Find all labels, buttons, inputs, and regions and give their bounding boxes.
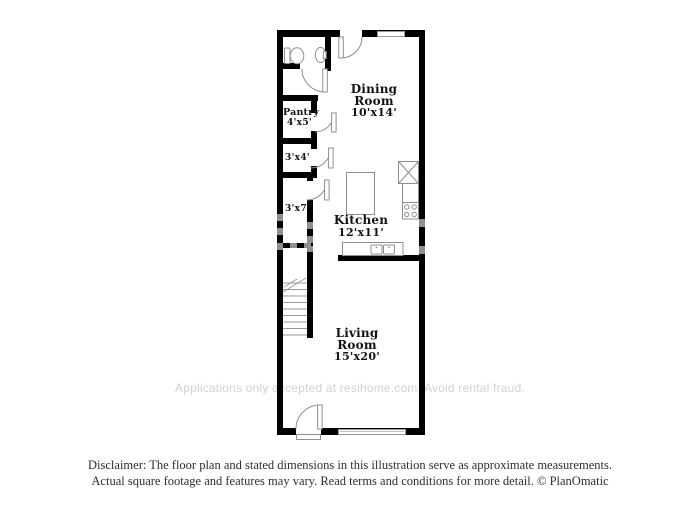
label-pantry: Pantry 4'x5' [283, 108, 316, 128]
kitchen-counter-right [403, 184, 419, 203]
room-dims: 4'x5' [283, 118, 316, 128]
room-dims: 3'x7' [283, 204, 312, 214]
sink-icon [315, 47, 326, 62]
disclaimer-line-1: Disclaimer: The floor plan and stated di… [0, 458, 700, 474]
room-dims: 12'x11' [324, 227, 398, 239]
back-door [339, 37, 362, 58]
stove-icon [403, 203, 419, 220]
room-name: Dining Room [337, 84, 411, 107]
closet-b-door [307, 180, 329, 200]
label-kitchen: Kitchen 12'x11' [324, 215, 398, 239]
label-living-room: Living Room 15'x20' [320, 328, 394, 363]
label-closet-b: 3'x7' [283, 204, 312, 214]
stairs [283, 278, 307, 335]
closet-a-door [311, 148, 333, 168]
room-name: Kitchen [324, 215, 398, 227]
disclaimer-line-2: Actual square footage and features may v… [0, 474, 700, 490]
kitchen-island [347, 173, 375, 215]
room-name: Pantry [283, 108, 316, 118]
room-dims: 15'x20' [320, 351, 394, 363]
room-dims: 10'x14' [337, 107, 411, 119]
front-door-threshold [297, 435, 321, 440]
disclaimer: Disclaimer: The floor plan and stated di… [0, 458, 700, 489]
room-dims: 3'x4' [283, 153, 312, 163]
label-closet-a: 3'x4' [283, 153, 312, 163]
bathroom-door [302, 69, 327, 92]
fixtures-overlay [0, 0, 700, 509]
toilet-icon [285, 48, 304, 64]
front-door [296, 405, 322, 440]
room-name: Living Room [320, 328, 394, 351]
label-dining-room: Dining Room 10'x14' [337, 84, 411, 119]
refrigerator-icon [399, 162, 419, 184]
floorplan-page: Applications only accepted at resihome.c… [0, 0, 700, 509]
